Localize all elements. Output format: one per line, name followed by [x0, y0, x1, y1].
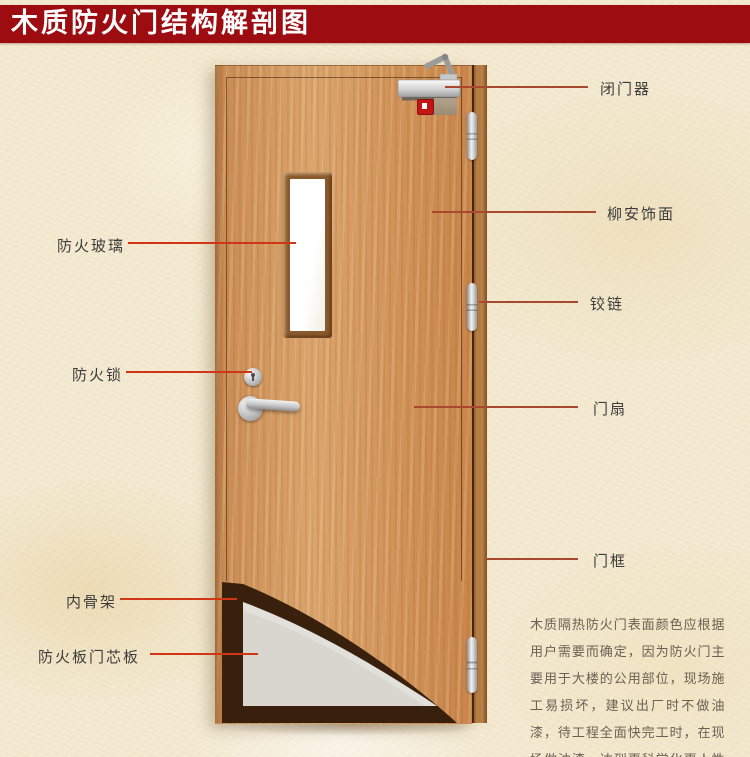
closer-arm-knuckle [442, 54, 448, 60]
hinge-middle-icon [467, 283, 477, 331]
leader-line-door-closer [445, 86, 588, 88]
leader-line-lauan-veneer [432, 211, 596, 213]
label-fire-lock: 防火锁 [72, 364, 123, 385]
leader-line-fire-glass [128, 242, 296, 244]
leader-line-fire-lock [126, 371, 252, 373]
door-closer-icon [393, 53, 468, 101]
leader-line-inner-skeleton [120, 598, 237, 600]
fire-rating-badge-icon [417, 99, 434, 115]
infographic-canvas: 木质防火门结构解剖图 [0, 0, 750, 757]
title-banner: 木质防火门结构解剖图 [0, 5, 750, 43]
cutaway-section [215, 575, 473, 723]
label-door-leaf: 门扇 [593, 398, 627, 419]
label-inner-skeleton: 内骨架 [66, 591, 117, 612]
label-hinge: 铰链 [590, 293, 624, 314]
door-frame-strip [474, 65, 487, 723]
leader-line-door-leaf [414, 406, 578, 408]
gray-label-plate [434, 98, 457, 115]
leader-line-hinge [479, 301, 578, 303]
leader-line-core-board [150, 653, 258, 655]
label-fire-glass: 防火玻璃 [57, 235, 125, 256]
leader-line-door-frame [487, 558, 578, 560]
closer-body [398, 80, 460, 97]
vision-panel-frame [283, 172, 332, 338]
description-text: 木质隔热防火门表面颜色应根据用户需要而确定，因为防火门主要用于大楼的公用部位，现… [530, 612, 725, 757]
label-core-board: 防火板门芯板 [38, 646, 140, 667]
keyslot-icon [252, 376, 254, 381]
door-panel-groove [226, 77, 462, 581]
label-lauan-veneer: 柳安饰面 [607, 203, 675, 224]
label-door-frame: 门框 [593, 550, 627, 571]
fire-rating-badge-center [422, 103, 427, 109]
label-door-closer: 闭门器 [600, 78, 651, 99]
hinge-top-icon [467, 112, 477, 160]
fire-glass-pane [290, 179, 325, 331]
page-title: 木质防火门结构解剖图 [0, 5, 750, 43]
